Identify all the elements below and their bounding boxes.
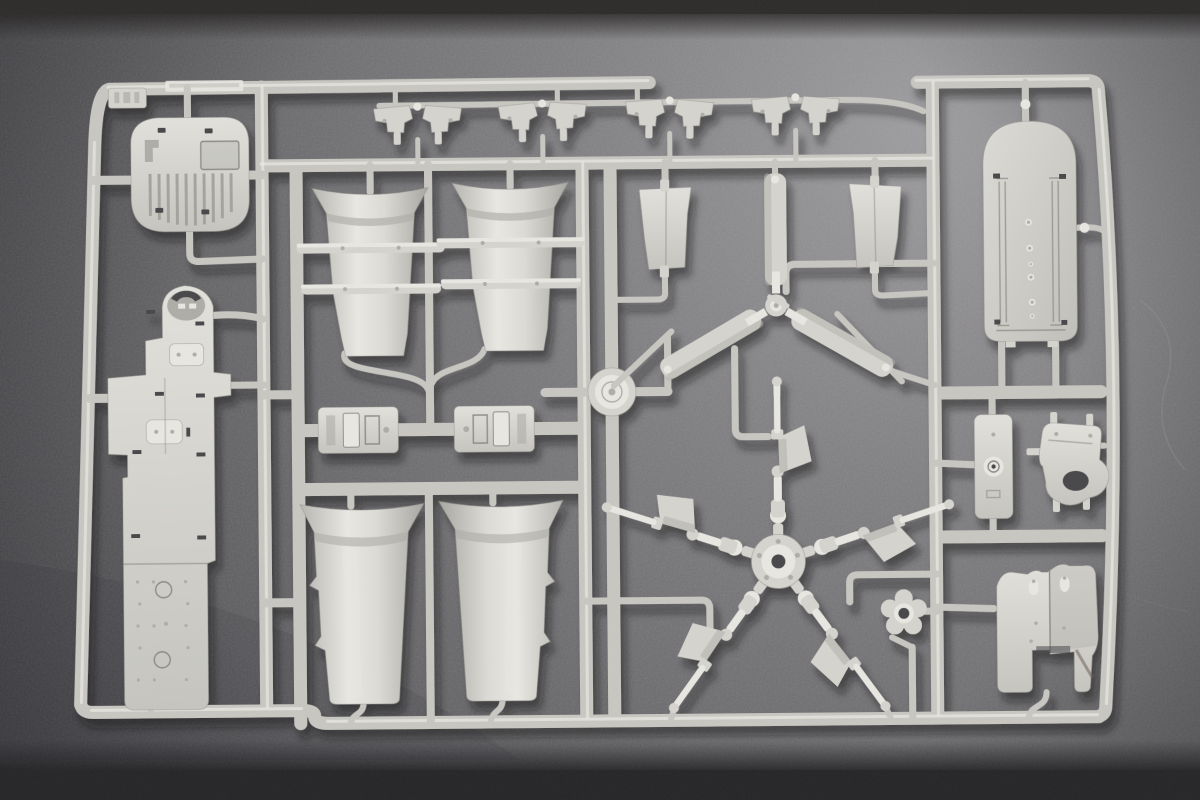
sprue-photo <box>0 0 1200 800</box>
photo-model-kit-sprue: Photograph of a light gray plastic model… <box>0 0 1200 800</box>
film-grain-overlay <box>0 0 1200 800</box>
